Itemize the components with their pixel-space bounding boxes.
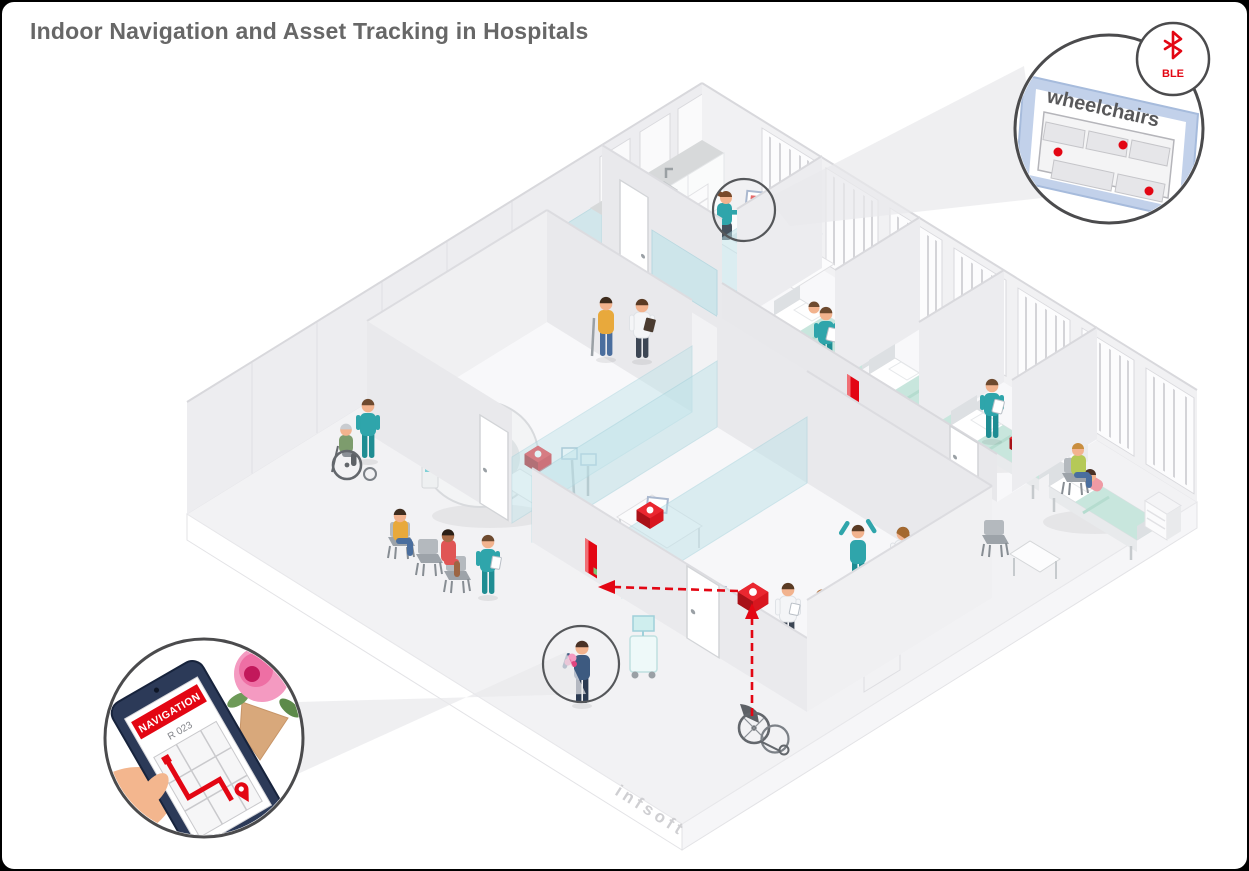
- asset-dot: [1054, 148, 1063, 157]
- asset-dot: [1145, 187, 1154, 196]
- hospital-isometric-illustration: infsoft: [2, 2, 1249, 871]
- callout-beam-top: [768, 66, 1042, 226]
- door-mri: [480, 415, 508, 520]
- ble-badge-label: BLE: [1162, 68, 1184, 80]
- ble-badge: BLE: [1137, 23, 1209, 95]
- page-title: Indoor Navigation and Asset Tracking in …: [30, 18, 589, 45]
- ultrasound-cart: [630, 616, 657, 679]
- callout-navigation-phone: NAVIGATION R 023: [63, 639, 304, 868]
- asset-dot: [1119, 141, 1128, 150]
- callout-asset-screen: wheelchairs BLE: [1015, 23, 1209, 253]
- infographic-frame: Indoor Navigation and Asset Tracking in …: [0, 0, 1249, 871]
